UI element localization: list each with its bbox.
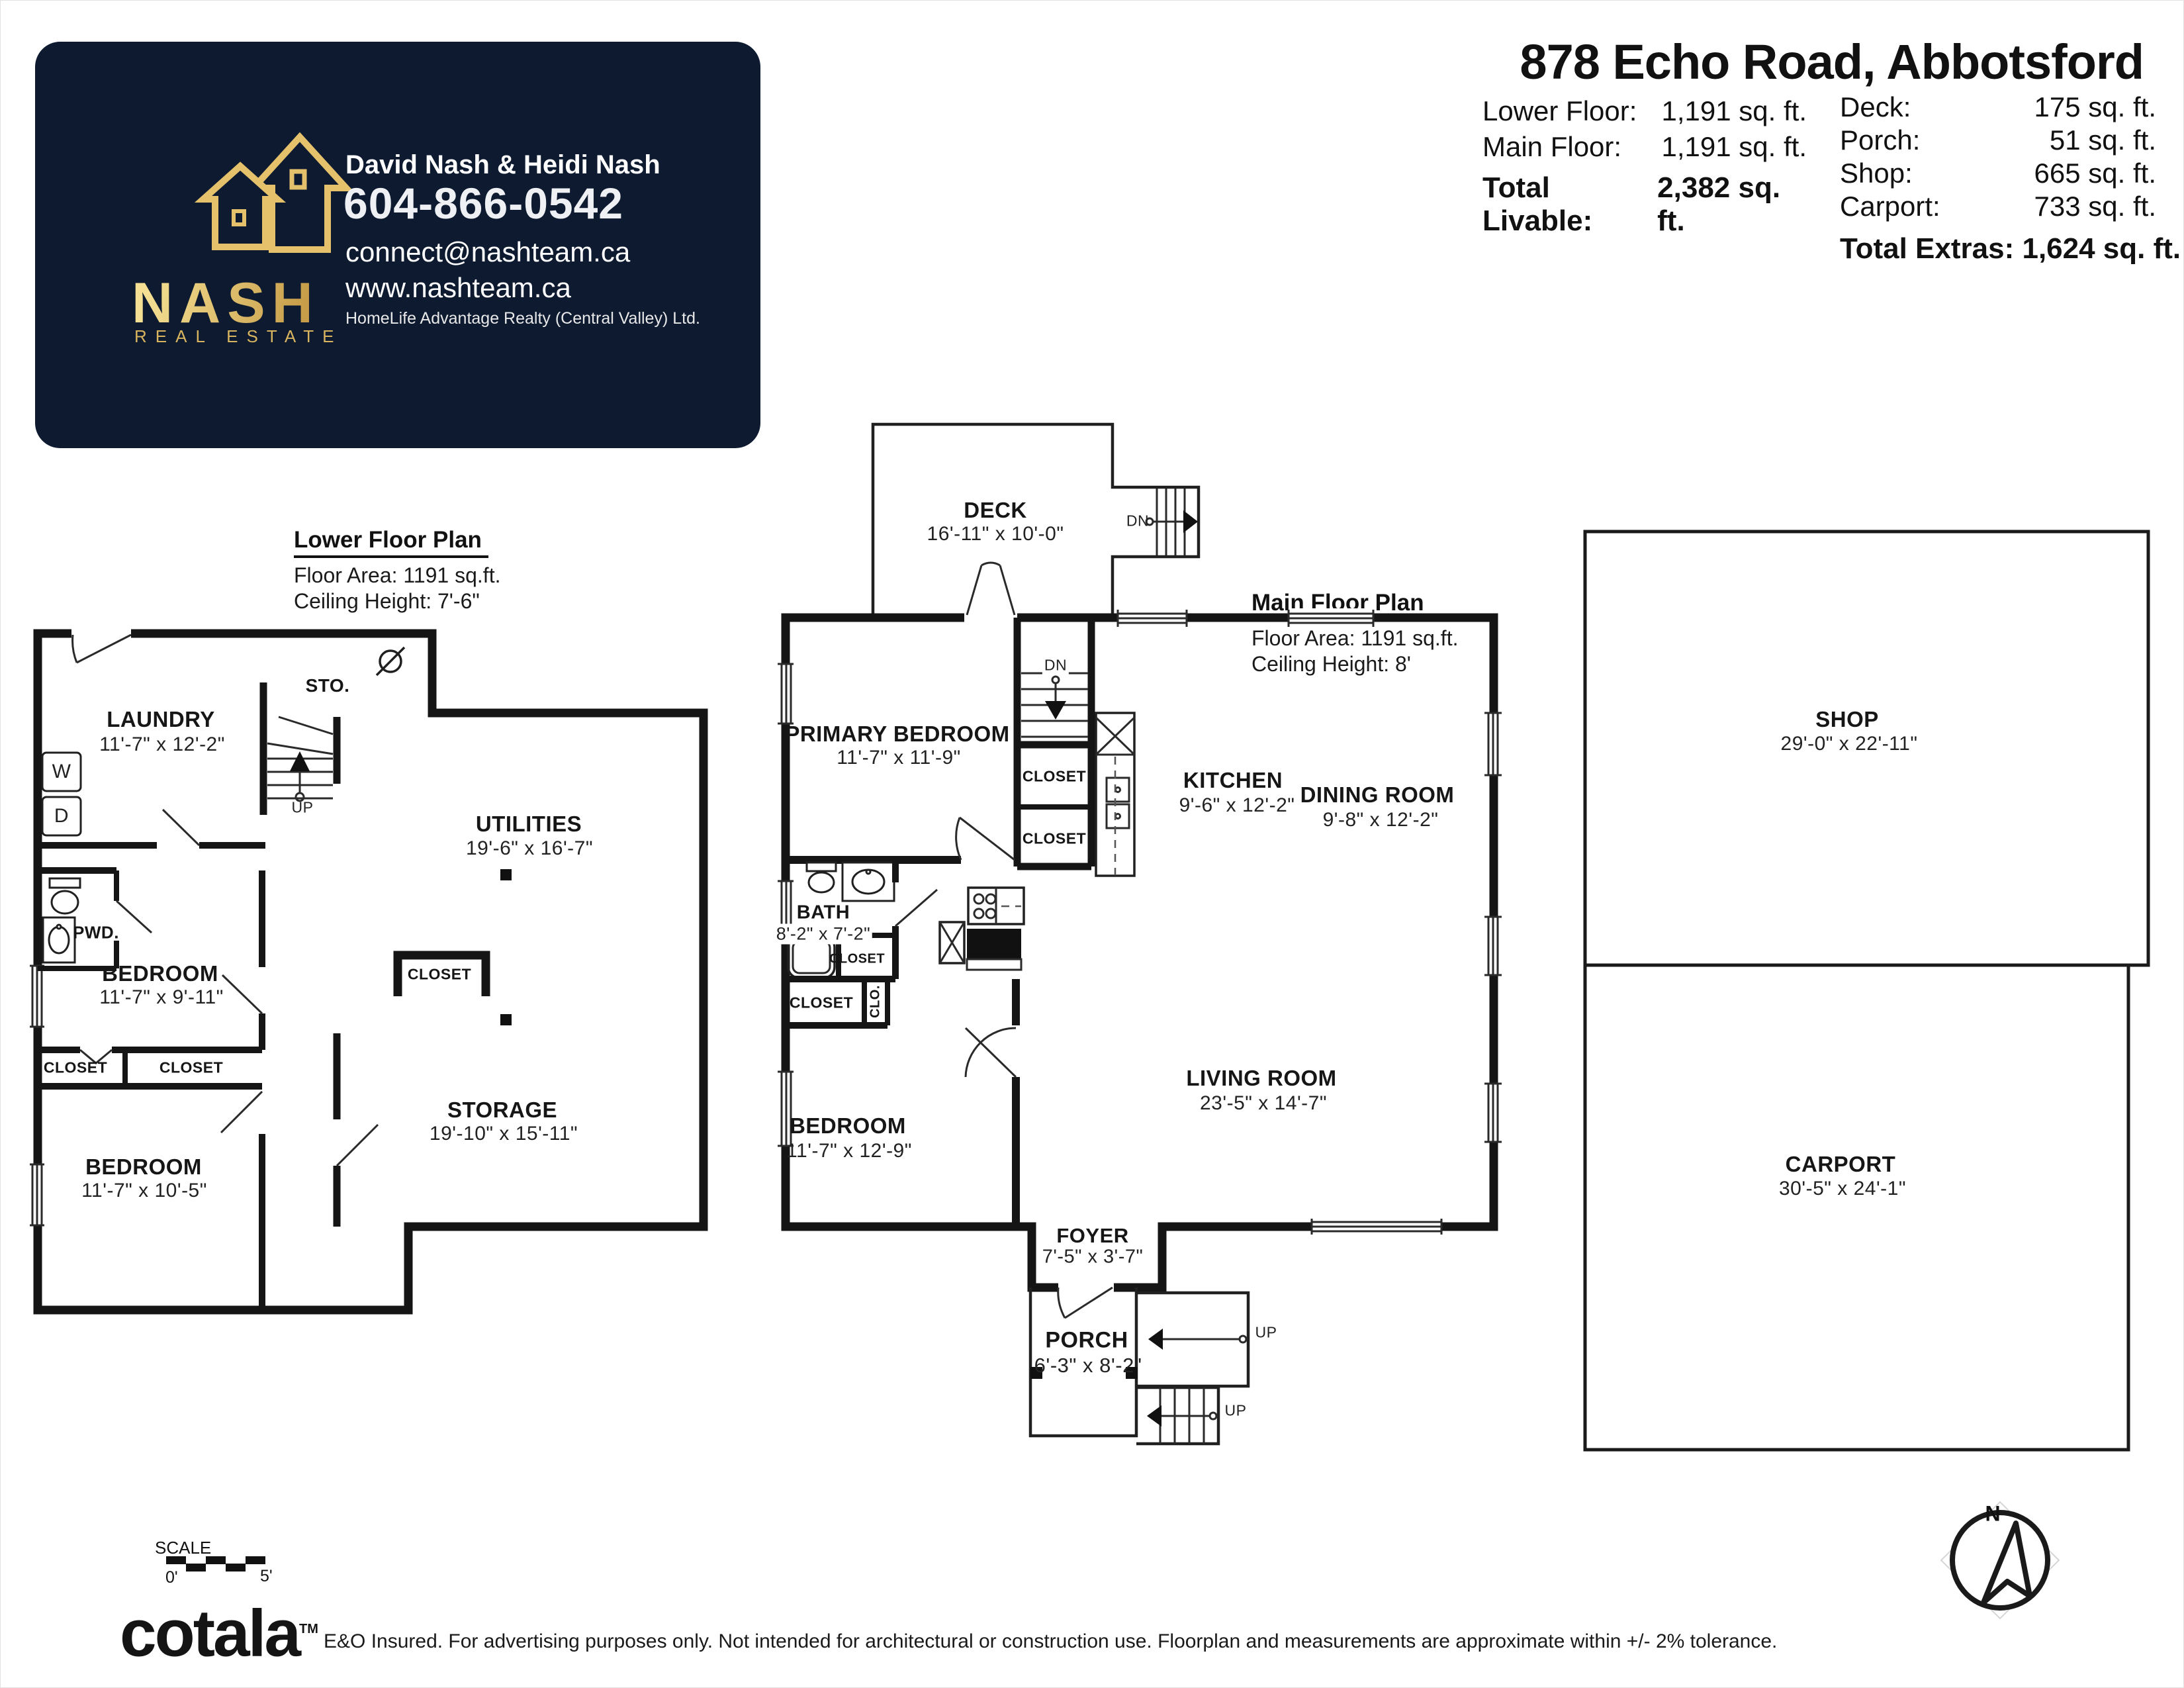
disclaimer-text: E&O Insured. For advertising purposes on… bbox=[324, 1630, 1777, 1653]
closet-label: CLOSET bbox=[829, 952, 885, 967]
sink-icon bbox=[842, 863, 894, 901]
room-dims-kitchen: 9'-6" x 12'-2" bbox=[1179, 794, 1295, 817]
room-label-porch: PORCH bbox=[1045, 1328, 1128, 1354]
room-dims-porch: 6'-3" x 8'-2" bbox=[1034, 1354, 1142, 1378]
room-label-deck: DECK bbox=[964, 498, 1027, 523]
room-label-bedroom1: BEDROOM bbox=[102, 961, 218, 986]
room-dims-deck: 16'-11" x 10'-0" bbox=[927, 523, 1064, 545]
room-label-powder: PWD. bbox=[73, 923, 119, 943]
room-label-bedroom: BEDROOM bbox=[790, 1113, 906, 1139]
room-label-bedroom2: BEDROOM bbox=[85, 1154, 202, 1180]
toilet-icon bbox=[50, 878, 80, 914]
scale-zero: 0' bbox=[165, 1568, 178, 1587]
compass-north-label: N bbox=[1985, 1502, 2000, 1526]
room-label-dining: DINING ROOM bbox=[1300, 782, 1455, 808]
trademark-symbol: TM bbox=[299, 1622, 318, 1636]
room-label-shop: SHOP bbox=[1815, 707, 1879, 732]
room-dims-primary-bedroom: 11'-7" x 11'-9" bbox=[837, 747, 961, 769]
room-label-living: LIVING ROOM bbox=[1186, 1066, 1336, 1091]
main-floor-walls bbox=[776, 424, 1503, 1444]
room-label-storage: STORAGE bbox=[447, 1098, 557, 1123]
room-dims-laundry: 11'-7" x 12'-2" bbox=[99, 733, 225, 756]
crossed-circle-icon bbox=[377, 647, 404, 675]
washer-label: W bbox=[52, 761, 71, 783]
closet-label: CLOSET bbox=[1023, 830, 1086, 848]
floorplan-sheet: NASH REAL ESTATE David Nash & Heidi Nash… bbox=[0, 0, 2184, 1688]
closet-label-vertical: CLO. bbox=[868, 985, 884, 1018]
room-dims-bedroom2: 11'-7" x 10'-5" bbox=[81, 1180, 207, 1202]
scale-label: SCALE bbox=[155, 1538, 211, 1558]
room-dims-bath: 8'-2" x 7'-2" bbox=[775, 924, 872, 945]
room-dims-bedroom1: 11'-7" x 9'-11" bbox=[99, 986, 224, 1009]
scale-five: 5' bbox=[260, 1567, 273, 1586]
room-dims-storage: 19'-10" x 15'-11" bbox=[430, 1123, 578, 1145]
room-dims-utilities: 19'-6" x 16'-7" bbox=[466, 837, 593, 860]
room-label-kitchen: KITCHEN bbox=[1183, 768, 1283, 793]
scale-bar bbox=[166, 1556, 265, 1571]
room-label-bath: BATH bbox=[795, 902, 852, 924]
stairs-dn-label: DN bbox=[1042, 657, 1069, 675]
closet-label: CLOSET bbox=[790, 994, 853, 1012]
closet-label: CLOSET bbox=[408, 966, 471, 984]
sink-icon bbox=[43, 917, 75, 962]
stairs-up-label: UP bbox=[1225, 1402, 1247, 1420]
closet-label: CLOSET bbox=[44, 1059, 107, 1077]
room-label-primary-bedroom: PRIMARY BEDROOM bbox=[785, 722, 1009, 747]
cotala-logo: cotalaTM bbox=[120, 1603, 318, 1660]
stairs-dn-label: DN bbox=[1126, 512, 1149, 530]
room-dims-carport: 30'-5" x 24'-1" bbox=[1779, 1178, 1906, 1200]
room-dims-bedroom: 11'-7" x 12'-9" bbox=[786, 1140, 912, 1162]
closet-label: CLOSET bbox=[159, 1059, 223, 1077]
closet-label: CLOSET bbox=[1023, 768, 1086, 786]
room-dims-shop: 29'-0" x 22'-11" bbox=[1781, 733, 1918, 755]
room-dims-dining: 9'-8" x 12'-2" bbox=[1323, 809, 1439, 831]
room-label-foyer: FOYER bbox=[1056, 1224, 1128, 1248]
dryer-label: D bbox=[54, 805, 69, 827]
stairs-up-label: UP bbox=[292, 799, 314, 817]
toilet-icon bbox=[807, 863, 836, 892]
room-label-utilities: UTILITIES bbox=[476, 812, 582, 837]
room-label-laundry: LAUNDRY bbox=[107, 707, 215, 732]
room-dims-living: 23'-5" x 14'-7" bbox=[1200, 1092, 1327, 1115]
floorplan-drawing bbox=[1, 1, 2184, 1688]
outbuilding-outlines bbox=[1585, 532, 2148, 1450]
room-label-storage-small: STO. bbox=[306, 675, 350, 696]
room-label-carport: CARPORT bbox=[1786, 1152, 1896, 1177]
cooktop-icon bbox=[968, 888, 1024, 924]
fireplace-icon bbox=[967, 929, 1021, 970]
room-dims-foyer: 7'-5" x 3'-7" bbox=[1042, 1246, 1144, 1268]
stairs-up-label: UP bbox=[1255, 1324, 1277, 1342]
